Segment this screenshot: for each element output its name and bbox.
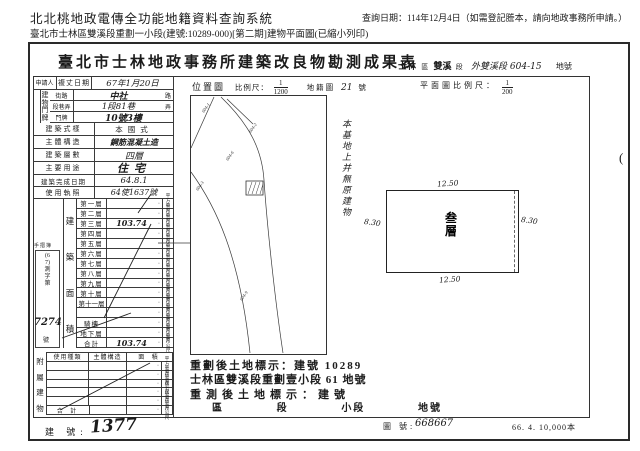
address-row-number: 門牌 10號3樓 bbox=[50, 112, 173, 123]
attached-row: ·平方公尺 bbox=[47, 388, 172, 397]
lane-label: 段巷弄 bbox=[50, 101, 74, 111]
plan-dim-bottom: 12.50 bbox=[439, 274, 461, 284]
floor-name: 第九層 bbox=[77, 279, 107, 288]
plan-scale-fraction: 1200 bbox=[502, 80, 513, 96]
applicant-label: 申請人 bbox=[33, 76, 57, 89]
completion-date-value: 64.8.1 bbox=[95, 176, 173, 186]
location-map-header: 位置圖 比例尺： 11200 地籍圖 21 號 bbox=[192, 80, 366, 96]
col-district: 區 bbox=[212, 399, 224, 414]
survey-box-label: (67)測字第 bbox=[44, 253, 52, 288]
plan-header: 平面圖比例尺： 1200 bbox=[420, 80, 516, 96]
attached-total-row: 合 計·平方公尺 bbox=[47, 406, 172, 414]
survey-number-box: (67)測字第 7274 號 bbox=[35, 250, 60, 348]
address-divider bbox=[40, 90, 41, 123]
attached-header-structure: 主體構造 bbox=[89, 353, 127, 361]
usage-value: 住宅 bbox=[95, 160, 173, 176]
floor-area-label: 建築面積 bbox=[64, 203, 76, 347]
usage-row: 主要用途 住宅 bbox=[33, 162, 173, 175]
form-divider bbox=[173, 76, 174, 418]
floor-row-11: 第十一層·平方公尺 bbox=[77, 298, 173, 308]
style-value: 本國式 bbox=[95, 124, 173, 135]
query-date: 查詢日期：114年12月4日（如需登記謄本，請向地政事務所申請。） bbox=[362, 11, 627, 24]
parcel-suffix: 地號 bbox=[556, 62, 572, 71]
license-value: 64使1637號 bbox=[95, 187, 173, 198]
section-name: 雙溪 bbox=[434, 61, 452, 71]
attached-building-table: 使用種類 主體構造 面 積 ·平方公尺 ·平方公尺 ·平方公尺 ·平方公尺 ·平… bbox=[46, 352, 173, 415]
floor-plan-dashed-edge bbox=[514, 191, 515, 272]
number-label: 門牌 bbox=[50, 112, 74, 122]
district-name: 士林 bbox=[398, 61, 416, 71]
completion-date-row: 建築完成日期 64.8.1 bbox=[33, 175, 173, 187]
attached-row: ·平方公尺 bbox=[47, 371, 172, 380]
floor-name: 第十層 bbox=[77, 288, 107, 297]
cadastral-map-number: 21 bbox=[341, 83, 352, 93]
floor-name: 合計 bbox=[77, 338, 107, 347]
resurvey-columns: 區 段 小段 地號 bbox=[212, 399, 442, 414]
floor-value: 103.74 bbox=[107, 339, 156, 347]
survey-number-value: 7274 bbox=[34, 317, 62, 328]
survey-date-value: 67年1月20日 bbox=[92, 77, 173, 89]
print-note: 66. 4. 10,000本 bbox=[512, 422, 576, 433]
survey-box-header: 手摺簿 bbox=[34, 242, 52, 249]
usage-label: 主要用途 bbox=[33, 162, 95, 174]
number-value: 10號3樓 bbox=[74, 111, 173, 124]
survey-date-label: 複丈日期 bbox=[57, 76, 92, 89]
no-original-building-note: 本基地上并無原建物 bbox=[341, 120, 352, 219]
area-unit: 平方公尺 bbox=[162, 338, 173, 347]
floor-name bbox=[77, 308, 107, 317]
license-label: 使用執照 bbox=[33, 187, 95, 198]
floor-name: 第十一層 bbox=[77, 298, 107, 307]
location-scale-label: 比例尺： bbox=[235, 83, 269, 92]
col-parcel: 地號 bbox=[418, 399, 442, 414]
attached-row: ·平方公尺 bbox=[47, 362, 172, 371]
map-no-label: 圖 號: bbox=[383, 421, 415, 432]
map-no-value: 668667 bbox=[415, 418, 453, 429]
street-suffix: 路 bbox=[163, 90, 173, 100]
completion-date-label: 建築完成日期 bbox=[33, 175, 95, 186]
district-suffix: 區 bbox=[421, 63, 428, 71]
floor-name: 第三層 bbox=[77, 219, 107, 228]
document-title: 臺北市士林地政事務所建築改良物勘測成果表 bbox=[58, 51, 418, 72]
floor-value: 103.74 bbox=[107, 219, 156, 227]
survey-number-suffix: 號 bbox=[43, 335, 49, 344]
plan-dim-top: 12.50 bbox=[437, 178, 459, 188]
document-subtitle: 臺北市士林區雙溪段重劃一小段(建號:10289-000)[第二期]建物平面圖(已… bbox=[30, 26, 368, 40]
attached-row: ·平方公尺 bbox=[47, 380, 172, 389]
license-row: 使用執照 64使1637號 bbox=[33, 187, 173, 199]
attached-header-usage: 使用種類 bbox=[47, 353, 89, 361]
location-map-label: 位置圖 bbox=[192, 82, 225, 92]
attached-header-row: 使用種類 主體構造 面 積 bbox=[47, 353, 172, 362]
location-scale-fraction: 11200 bbox=[274, 80, 288, 96]
floor-stamp: 叁層 bbox=[443, 212, 459, 238]
style-label: 建築式樣 bbox=[33, 123, 95, 135]
section-suffix: 段 bbox=[456, 63, 463, 71]
floor-area-table: 第一層·平方公尺 第二層·平方公尺 第三層103.74·平方公尺 第四層·平方公… bbox=[76, 199, 173, 348]
col-subsection: 小段 bbox=[341, 399, 365, 414]
floor-name: 第六層 bbox=[77, 249, 107, 258]
land-registry-document-viewer: 北北桃地政電傳全功能地籍資料查詢系統 查詢日期：114年12月4日（如需登記謄本… bbox=[0, 0, 640, 451]
cadastral-map-suffix: 號 bbox=[358, 83, 366, 92]
floor-name: 第七層 bbox=[77, 259, 107, 268]
title-right-section: 士林 區 雙溪 段 外雙溪段 604-15 地號 bbox=[398, 59, 572, 72]
floor-name: 第二層 bbox=[77, 209, 107, 218]
system-title: 北北桃地政電傳全功能地籍資料查詢系統 bbox=[30, 8, 273, 27]
binding-mark: ( bbox=[619, 150, 623, 166]
building-no-value: 1377 bbox=[89, 414, 138, 437]
address-label: 建物門牌 bbox=[40, 92, 50, 122]
floors-count-label: 建築層數 bbox=[33, 149, 95, 161]
location-map-box bbox=[190, 95, 327, 355]
floor-name: 第四層 bbox=[77, 229, 107, 238]
structure-value: 鋼筋混凝土造 bbox=[95, 137, 173, 148]
floor-name: 第八層 bbox=[77, 269, 107, 278]
structure-row: 主體構造 鋼筋混凝土造 bbox=[33, 136, 173, 149]
floor-name: 第五層 bbox=[77, 239, 107, 248]
structure-label: 主體構造 bbox=[33, 136, 95, 148]
style-row: 建築式樣 本國式 bbox=[33, 123, 173, 136]
lane-suffix: 弄 bbox=[163, 101, 173, 111]
area-unit: 平方公尺 bbox=[161, 406, 172, 414]
street-label: 街路 bbox=[50, 90, 74, 100]
building-no-label: 建 號: bbox=[45, 425, 88, 438]
replot-land-line2: 士林區雙溪段重劃壹小段 61 地號 bbox=[190, 371, 367, 387]
cadastral-map-label: 地籍圖 bbox=[307, 83, 336, 92]
total-row: 合計103.74·平方公尺 bbox=[77, 338, 173, 348]
floor-name: 騎樓 bbox=[77, 318, 107, 327]
parcel-handwritten: 外雙溪段 604-15 bbox=[471, 62, 542, 72]
col-section: 段 bbox=[277, 399, 289, 414]
attached-total-label: 合 計 bbox=[47, 406, 89, 414]
floor-name: 地下層 bbox=[77, 328, 107, 337]
floor-name: 第一層 bbox=[77, 199, 107, 208]
attached-building-label: 附屬建物 bbox=[35, 354, 45, 416]
plan-scale-label: 平面圖比例尺： bbox=[420, 81, 497, 90]
